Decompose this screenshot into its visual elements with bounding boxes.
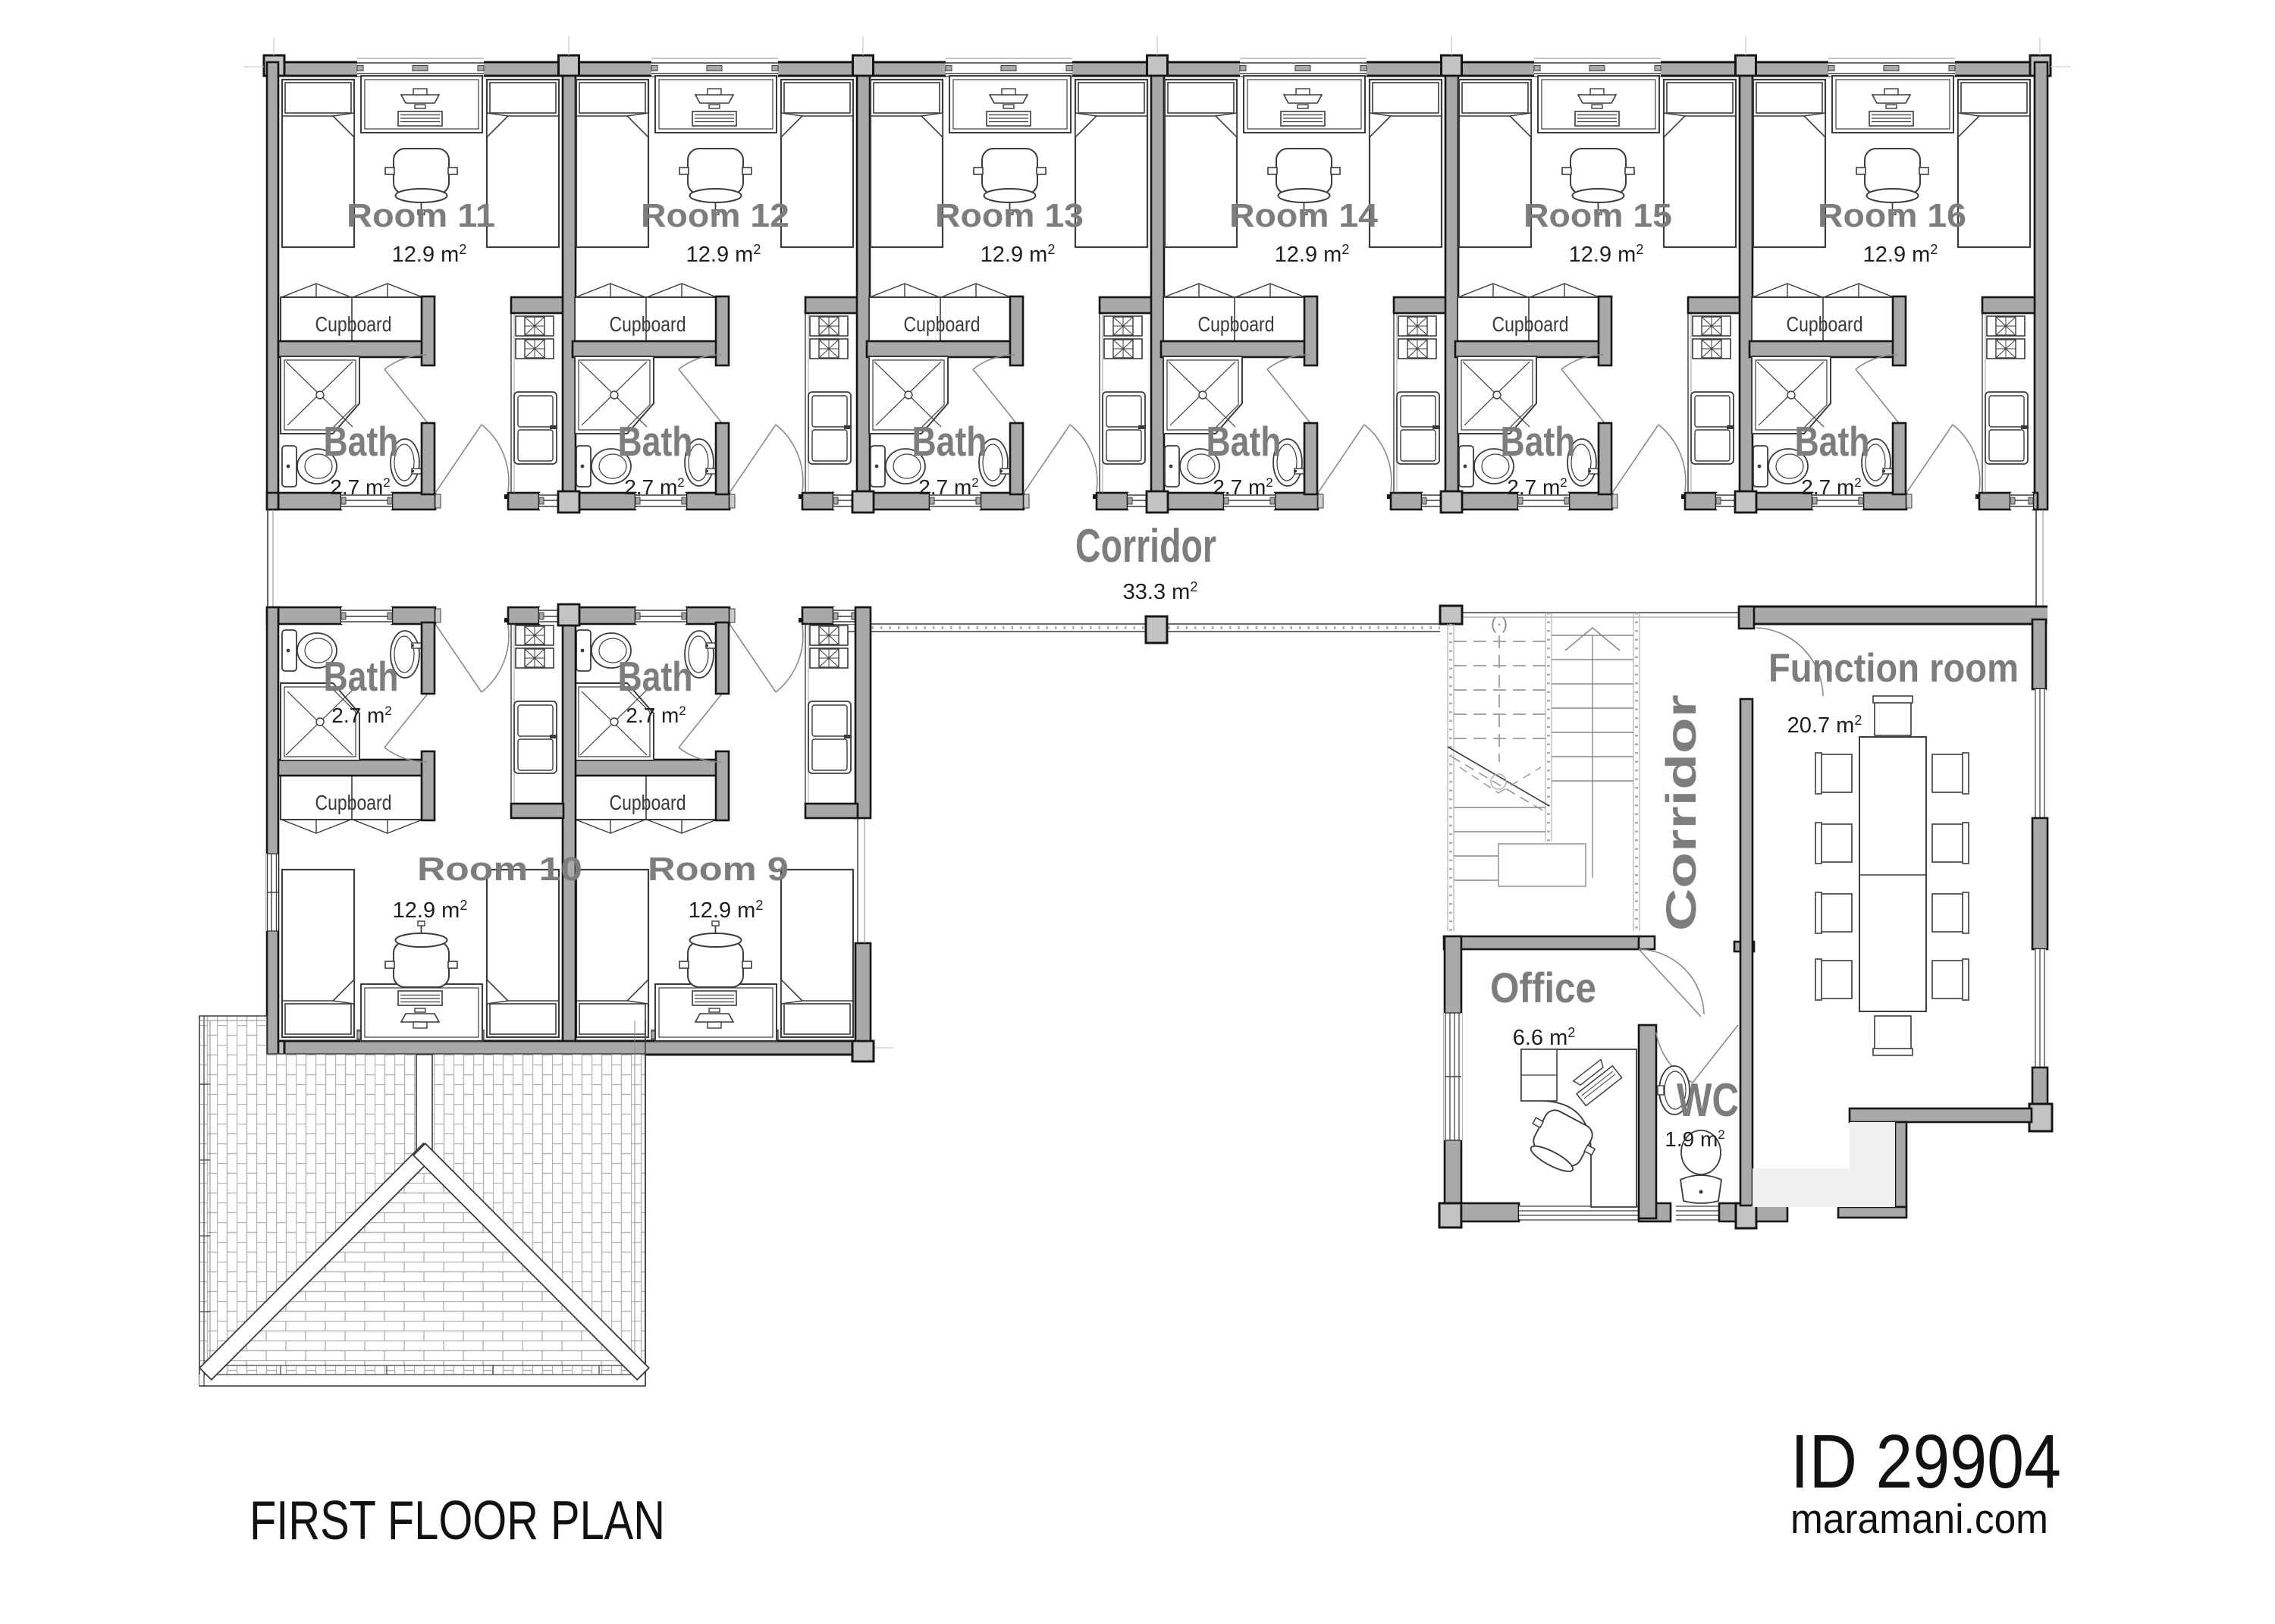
svg-text:12.9 m2: 12.9 m2	[1863, 242, 1938, 267]
svg-text:Bath: Bath	[912, 418, 987, 465]
svg-text:(·): (·)	[1491, 614, 1508, 633]
svg-text:2.7 m2: 2.7 m2	[626, 704, 686, 727]
svg-text:WC: WC	[1677, 1074, 1739, 1127]
svg-text:12.9 m2: 12.9 m2	[981, 242, 1056, 267]
svg-text:6.6 m2: 6.6 m2	[1513, 1025, 1576, 1050]
svg-text:20.7 m2: 20.7 m2	[1787, 713, 1862, 738]
svg-text:Room 11: Room 11	[347, 197, 495, 234]
svg-text:Room 12: Room 12	[641, 197, 789, 234]
svg-text:Room 14: Room 14	[1229, 197, 1379, 234]
svg-text:Cupboard: Cupboard	[904, 312, 981, 336]
svg-text:Bath: Bath	[1207, 418, 1282, 465]
svg-text:Bath: Bath	[1795, 418, 1870, 465]
svg-text:Bath: Bath	[618, 418, 693, 465]
svg-text:2.7 m2: 2.7 m2	[331, 704, 392, 727]
svg-text:Cupboard: Cupboard	[315, 791, 392, 814]
svg-text:Cupboard: Cupboard	[610, 312, 686, 336]
svg-text:Cupboard: Cupboard	[1787, 312, 1863, 336]
svg-text:12.9 m2: 12.9 m2	[1275, 242, 1350, 267]
svg-text:12.9 m2: 12.9 m2	[392, 242, 467, 267]
svg-text:Bath: Bath	[324, 418, 399, 465]
svg-text:2.7 m2: 2.7 m2	[918, 475, 979, 499]
svg-text:Corridor: Corridor	[1657, 694, 1705, 931]
svg-text:Room 9: Room 9	[648, 851, 789, 888]
svg-text:2.7 m2: 2.7 m2	[624, 475, 685, 499]
svg-text:12.9 m2: 12.9 m2	[393, 898, 468, 923]
svg-text:12.9 m2: 12.9 m2	[689, 898, 764, 923]
svg-text:Office: Office	[1490, 964, 1596, 1011]
svg-text:2.7 m2: 2.7 m2	[1801, 475, 1862, 499]
svg-text:Corridor: Corridor	[1075, 520, 1216, 572]
svg-text:maramani.com: maramani.com	[1790, 1495, 2048, 1542]
svg-text:Bath: Bath	[324, 653, 399, 700]
svg-text:Room 13: Room 13	[935, 197, 1084, 234]
svg-text:Bath: Bath	[1501, 418, 1576, 465]
svg-text:2.7 m2: 2.7 m2	[330, 475, 391, 499]
svg-text:12.9 m2: 12.9 m2	[686, 242, 761, 267]
svg-text:33.3 m2: 33.3 m2	[1123, 579, 1198, 604]
svg-text:ID 29904: ID 29904	[1790, 1419, 2061, 1504]
svg-text:Cupboard: Cupboard	[315, 312, 392, 336]
svg-text:Room 10: Room 10	[417, 851, 582, 888]
svg-text:Cupboard: Cupboard	[1198, 312, 1275, 336]
svg-text:Room 15: Room 15	[1523, 197, 1672, 234]
svg-text:2.7 m2: 2.7 m2	[1213, 475, 1273, 499]
svg-text:FIRST FLOOR PLAN: FIRST FLOOR PLAN	[249, 1491, 665, 1551]
svg-text:Cupboard: Cupboard	[1492, 312, 1569, 336]
svg-text:1.9 m2: 1.9 m2	[1665, 1127, 1725, 1151]
svg-text:Cupboard: Cupboard	[610, 791, 686, 814]
svg-text:Bath: Bath	[618, 653, 693, 700]
svg-text:12.9 m2: 12.9 m2	[1569, 242, 1644, 267]
svg-text:Room 16: Room 16	[1818, 197, 1966, 234]
svg-text:2.7 m2: 2.7 m2	[1507, 475, 1567, 499]
svg-text:Function room: Function room	[1768, 646, 2019, 691]
